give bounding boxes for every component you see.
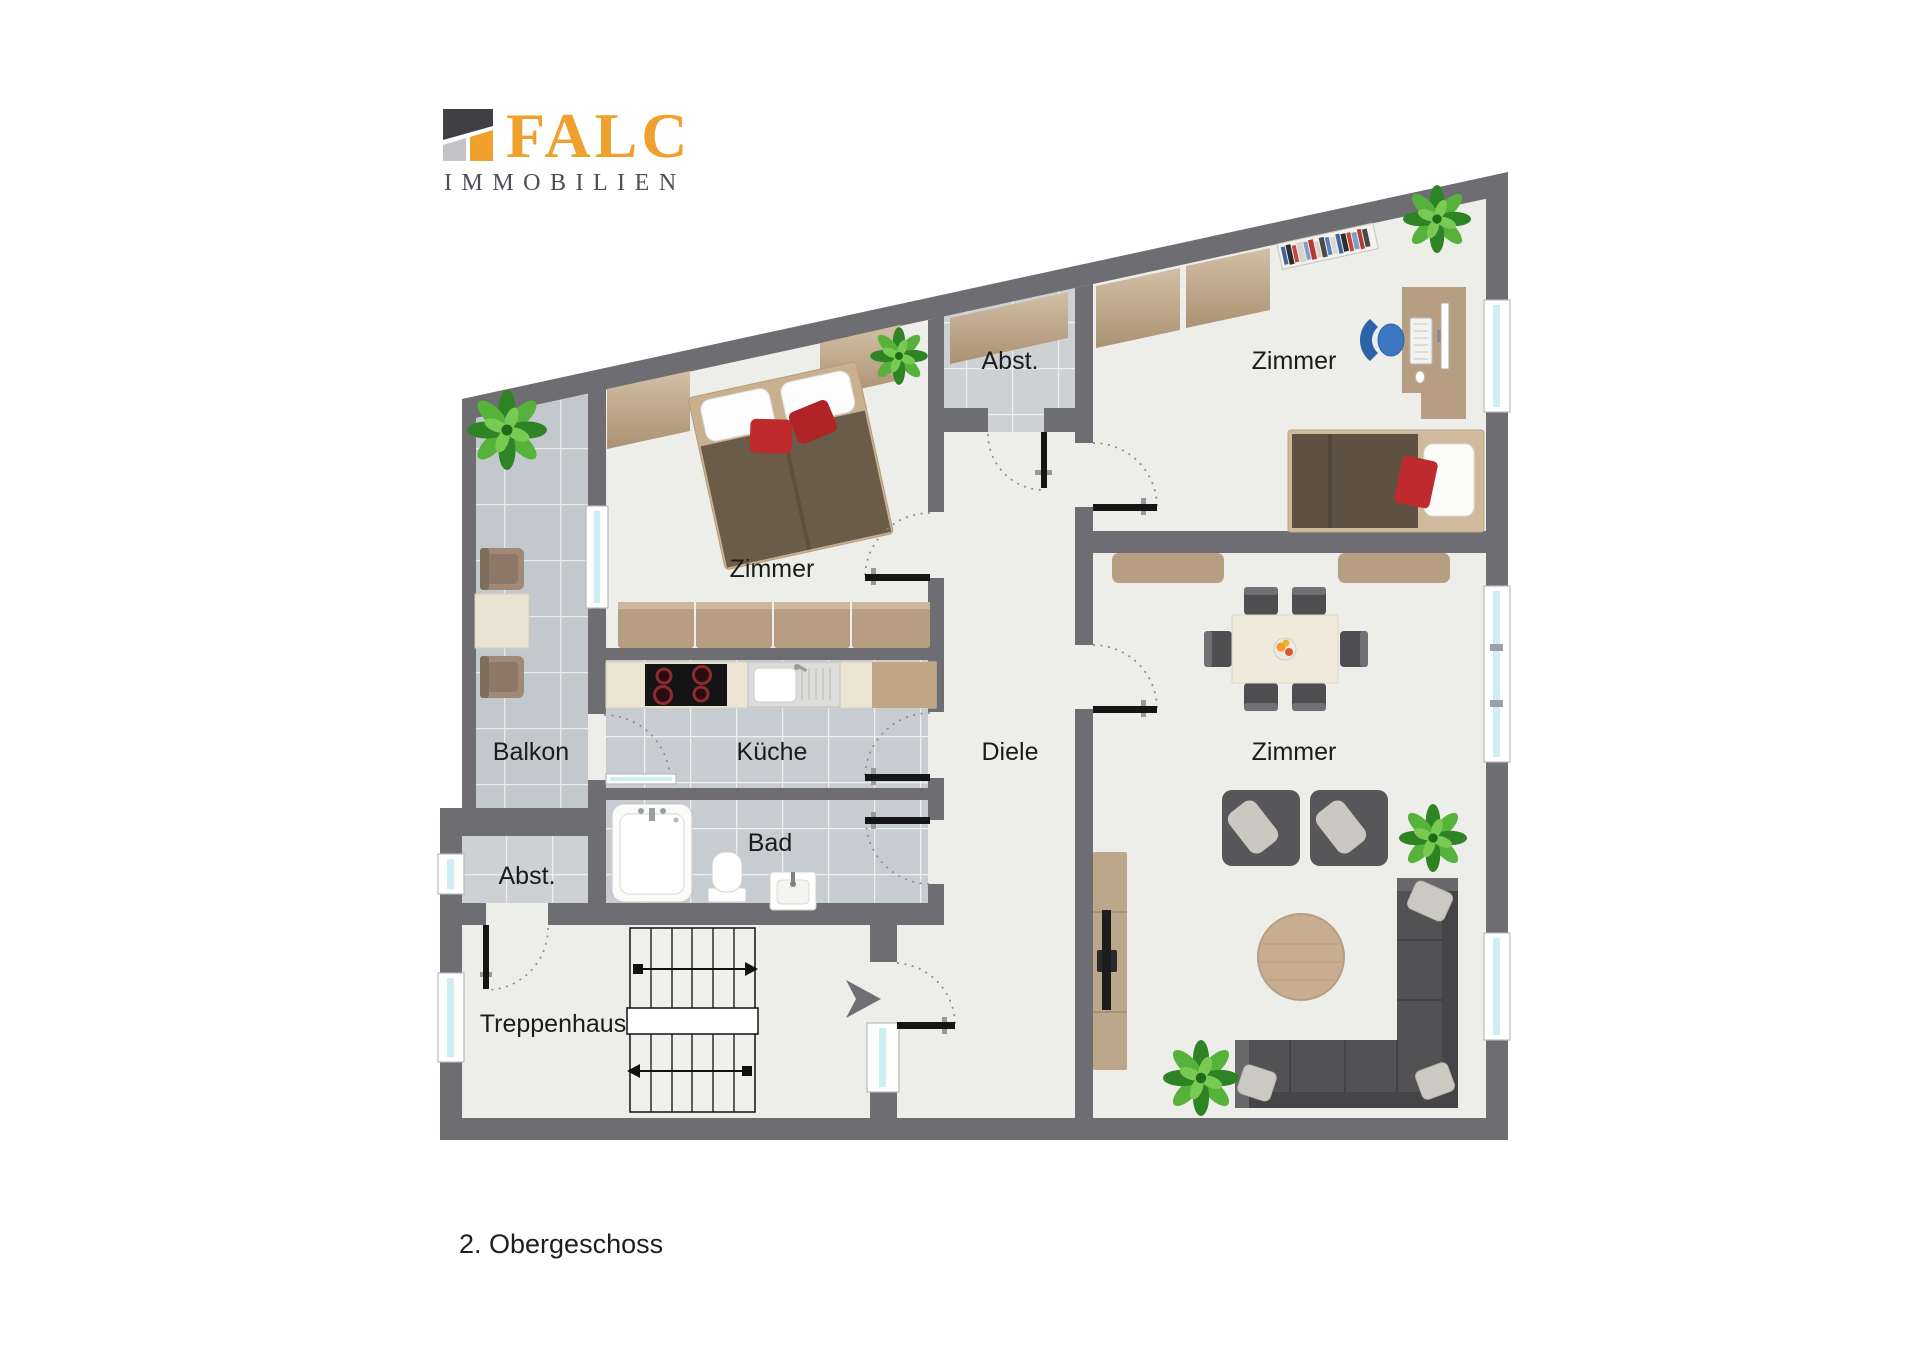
dining-chair [1292, 587, 1326, 615]
dining-chair [1244, 587, 1278, 615]
wall-bottom [440, 1118, 1508, 1140]
bathtub [612, 804, 692, 902]
coffee-table [1258, 914, 1344, 1000]
sideboard [1338, 553, 1450, 583]
plant-icon [1403, 185, 1471, 253]
cabinet-row [618, 602, 930, 648]
plant-icon [467, 390, 547, 470]
plant-icon [1399, 804, 1467, 872]
stairs-landing [627, 1008, 758, 1034]
stove [645, 664, 727, 706]
room-label-zimmer-e: Zimmer [1252, 738, 1337, 766]
logo-mark-left [443, 138, 466, 161]
keyboard [1410, 318, 1432, 364]
fruit-bowl [1274, 638, 1296, 660]
tv-lowboard [1093, 852, 1127, 1070]
balcony-chair [480, 548, 524, 590]
room-label-zimmer-nw: Zimmer [730, 555, 815, 583]
window [1484, 586, 1510, 762]
dining-chair [1292, 683, 1326, 711]
logo-mark-right [470, 130, 493, 161]
window [1484, 300, 1510, 412]
kitchen-furniture [606, 662, 936, 708]
floor-plan-canvas: FALC IMMOBILIEN [0, 0, 1920, 1357]
mouse [1416, 371, 1425, 383]
room-label-balkon: Balkon [493, 738, 569, 766]
wall-balcony-rail [462, 410, 476, 808]
room-label-diele: Diele [982, 738, 1039, 766]
floor-caption: 2. Obergeschoss [459, 1229, 663, 1259]
dining-chair [1340, 631, 1368, 667]
window [438, 973, 464, 1062]
dining-chair [1204, 631, 1232, 667]
counter-wood-end [872, 662, 936, 708]
room-label-bad: Bad [748, 829, 792, 857]
balcony-table [475, 594, 529, 648]
balcony-chair [480, 656, 524, 698]
wall-balcony-bottom [440, 808, 606, 836]
brand-logo: FALC IMMOBILIEN [443, 100, 691, 196]
armchair [1310, 790, 1388, 866]
room-label-abst-sw: Abst. [499, 862, 556, 890]
balcony-furniture [475, 548, 529, 698]
floor-plan-page: FALC IMMOBILIEN [0, 0, 1920, 1357]
plant-icon [870, 327, 928, 385]
toilet [708, 852, 746, 902]
room-label-kueche: Küche [737, 738, 808, 766]
room-label-zimmer-ne: Zimmer [1252, 347, 1337, 375]
brand-name: FALC [506, 100, 691, 171]
plant-icon [1163, 1040, 1239, 1116]
kitchen-sink [748, 662, 840, 707]
entrance-sidelight-window [867, 1023, 899, 1092]
window [586, 506, 608, 608]
monitor [1441, 303, 1449, 369]
window [438, 854, 464, 894]
single-bed [1288, 430, 1484, 532]
double-bed [688, 361, 894, 570]
armchair [1222, 790, 1300, 866]
sideboard [1112, 553, 1224, 583]
dining-chair [1244, 683, 1278, 711]
room-label-treppenhaus: Treppenhaus [480, 1010, 626, 1038]
stairs [627, 928, 758, 1112]
tv [1102, 910, 1111, 1010]
brand-subtitle: IMMOBILIEN [444, 170, 686, 196]
window [1484, 933, 1510, 1040]
washbasin [770, 872, 816, 910]
room-label-abst-top: Abst. [982, 347, 1039, 375]
